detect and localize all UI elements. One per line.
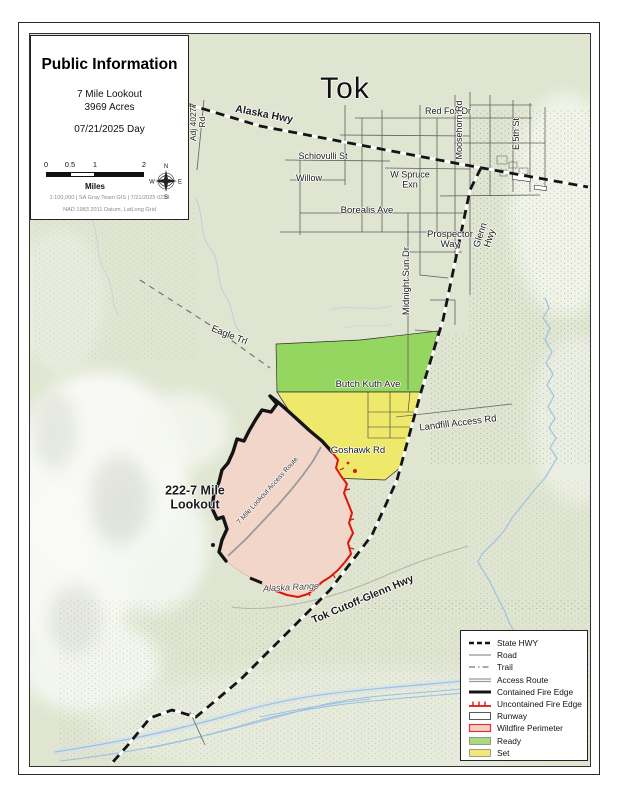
- label-town-tok: Tok: [320, 73, 370, 105]
- scalebar-unit: Miles: [45, 182, 145, 191]
- svg-text:N: N: [164, 164, 168, 170]
- legend: State HWY Road Trail Access Route Contai…: [460, 630, 588, 761]
- ready-swatch-icon: [468, 736, 492, 746]
- fire-acres: 3969 Acres: [31, 102, 188, 113]
- scalebar: [45, 172, 145, 178]
- label-schiovulli-st: Schiovulli St: [298, 152, 347, 162]
- svg-text:W: W: [149, 180, 155, 186]
- legend-item-road: Road: [461, 649, 587, 661]
- legend-item-access-route: Access Route: [461, 674, 587, 686]
- map-page: Tok Alaska Hwy Adj 40277 Rd Red Fox Dr M…: [0, 0, 618, 799]
- legend-item-wildfire-perimeter: Wildfire Perimeter: [461, 722, 587, 734]
- credits-line-2: NAD 1983 2011 Datum, LatLong Grid: [31, 207, 188, 213]
- label-moosehorn-rd: Moosehorn Rd: [455, 100, 465, 159]
- scale-tick-05: 0.5: [65, 160, 75, 169]
- label-butch-kuth-ave: Butch Kuth Ave: [332, 380, 404, 390]
- contained-fire-edge-line-icon: [468, 687, 492, 697]
- legend-item-contained-fire-edge: Contained Fire Edge: [461, 686, 587, 698]
- title-box: Public Information 7 Mile Lookout 3969 A…: [30, 35, 189, 220]
- fire-name: 7 Mile Lookout: [31, 89, 188, 100]
- trail-line-icon: [468, 662, 492, 672]
- uncontained-fire-edge-line-icon: [468, 699, 492, 709]
- label-midnight-sun-dr: Midnight Sun Dr: [402, 247, 412, 315]
- legend-item-runway: Runway: [461, 710, 587, 722]
- label-e-5th-st: E 5th St: [512, 118, 522, 150]
- runway-swatch-icon: [468, 711, 492, 721]
- label-willow: Willow: [296, 174, 322, 184]
- set-swatch-icon: [468, 748, 492, 758]
- svg-text:E: E: [178, 180, 182, 186]
- label-w-spruce-exn: W Spruce Exn: [384, 170, 436, 189]
- contained-edge-dot: [211, 543, 215, 547]
- credits-line-1: 1:100,000 | SA Gray Team GIS | 7/21/2025…: [31, 195, 188, 201]
- wildfire-perimeter-swatch-icon: [468, 723, 492, 733]
- scale-tick-0: 0: [44, 160, 48, 169]
- scale-tick-2: 2: [142, 160, 146, 169]
- label-fire-name: 222-7 Mile Lookout: [149, 485, 241, 512]
- scale-tick-1: 1: [93, 160, 97, 169]
- legend-item-state-hwy: State HWY: [461, 637, 587, 649]
- map-date: 07/21/2025 Day: [31, 124, 188, 135]
- map-title: Public Information: [31, 56, 188, 74]
- legend-item-trail: Trail: [461, 661, 587, 673]
- access-route-line-icon: [468, 675, 492, 685]
- legend-item-set: Set: [461, 747, 587, 759]
- label-goshawk-rd: Goshawk Rd: [330, 446, 386, 456]
- label-adj-40277-rd: Adj 40277 Rd: [189, 98, 207, 146]
- state-hwy-line-icon: [468, 638, 492, 648]
- label-borealis-ave: Borealis Ave: [341, 206, 394, 216]
- legend-item-ready: Ready: [461, 735, 587, 747]
- road-line-icon: [468, 650, 492, 660]
- legend-item-uncontained-fire-edge: Uncontained Fire Edge: [461, 698, 587, 710]
